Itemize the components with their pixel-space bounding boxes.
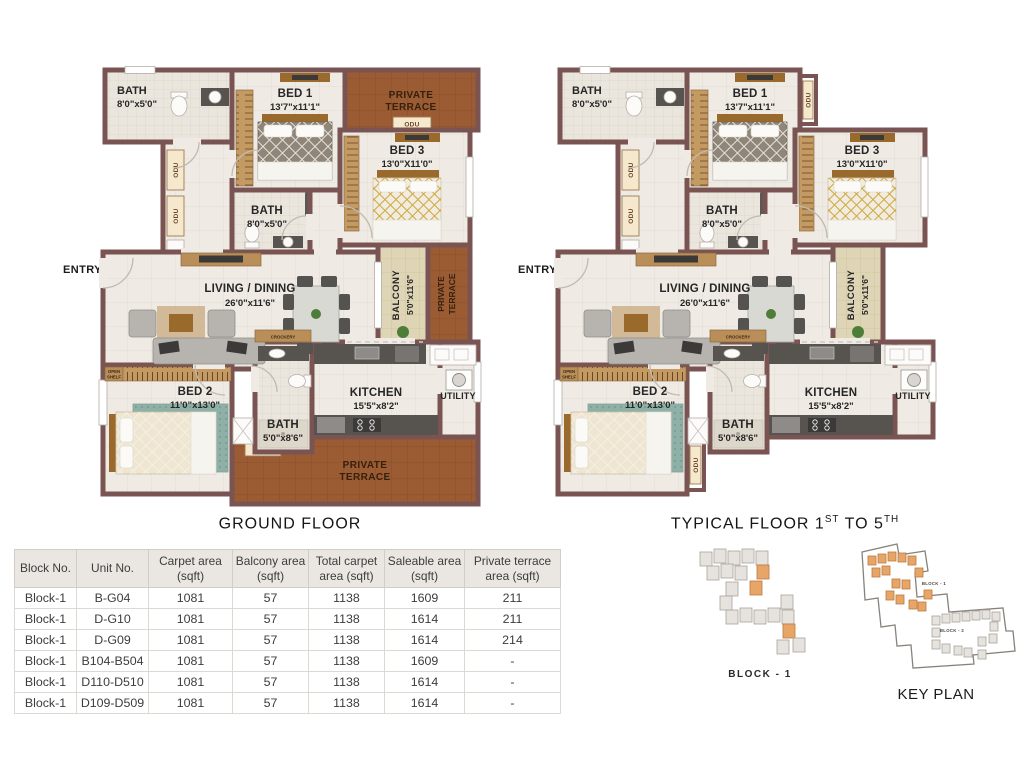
cell-block: Block-1 (15, 630, 77, 651)
cell-total-carpet: 1138 (309, 651, 385, 672)
svg-text:5'0"x11'6": 5'0"x11'6" (860, 275, 870, 315)
bath-bottom-label: BATH (722, 419, 754, 431)
kitchen-label: KITCHEN (350, 387, 403, 399)
bed1-label: BED 1 (278, 88, 313, 100)
svg-text:13'7"x11'1": 13'7"x11'1" (725, 102, 775, 113)
highlighted-unit (750, 581, 762, 595)
cell-carpet: 1081 (149, 651, 233, 672)
cell-block: Block-1 (15, 693, 77, 714)
cell-unit: D110-D510 (77, 672, 149, 693)
block1-units (700, 549, 805, 654)
cell-balcony: 57 (233, 651, 309, 672)
area-table-head: Block No.Unit No.Carpet area (sqft)Balco… (15, 550, 561, 588)
area-table: Block No.Unit No.Carpet area (sqft)Balco… (14, 549, 561, 714)
column-header: Saleable area (sqft) (385, 550, 465, 588)
bath-mid-label: BATH (706, 205, 738, 217)
cell-carpet: 1081 (149, 588, 233, 609)
svg-text:OPEN: OPEN (108, 369, 120, 374)
floor-plan-svg: ENTRY ODU ODU ODU ODU (510, 62, 945, 514)
svg-text:ODU: ODU (628, 208, 635, 223)
corridor-dressing: ODU ODU (163, 142, 232, 255)
bed3-label: BED 3 (390, 145, 425, 157)
svg-text:13'7"x11'1": 13'7"x11'1" (270, 102, 320, 113)
svg-text:TERRACE: TERRACE (447, 273, 457, 314)
svg-text:SHELF: SHELF (107, 375, 121, 380)
svg-text:26'0"x11'6": 26'0"x11'6" (680, 298, 730, 309)
cell-total-carpet: 1138 (309, 609, 385, 630)
svg-text:PRIVATE: PRIVATE (343, 460, 388, 471)
cell-carpet: 1081 (149, 609, 233, 630)
svg-text:5'0"x11'6": 5'0"x11'6" (405, 275, 415, 315)
svg-text:CROCKERY: CROCKERY (726, 335, 751, 340)
cell-unit: B104-B504 (77, 651, 149, 672)
column-header: Carpet area (sqft) (149, 550, 233, 588)
svg-text:ODU: ODU (173, 162, 180, 177)
bath-mid-label: BATH (251, 205, 283, 217)
cell-terrace: 211 (465, 609, 561, 630)
svg-text:CROCKERY: CROCKERY (271, 335, 296, 340)
balcony-label: BALCONY (391, 270, 402, 321)
cell-block: Block-1 (15, 609, 77, 630)
page: ENTRY PRIVATE TERRACE ODU PRIVATE TERRAC… (0, 0, 1024, 768)
cell-terrace: 211 (465, 588, 561, 609)
svg-text:ODU: ODU (806, 92, 813, 107)
svg-text:PRIVATE: PRIVATE (436, 276, 446, 312)
bed1-label: BED 1 (733, 88, 768, 100)
column-header: Private terrace area (sqft) (465, 550, 561, 588)
hallway (310, 190, 340, 252)
block1-inner-label: BLOCK - 1 (922, 581, 946, 586)
svg-text:15'5"x8'2": 15'5"x8'2" (808, 401, 853, 412)
cell-saleable: 1614 (385, 693, 465, 714)
cell-saleable: 1614 (385, 630, 465, 651)
cell-terrace: - (465, 672, 561, 693)
svg-text:26'0"x11'6": 26'0"x11'6" (225, 298, 275, 309)
cell-total-carpet: 1138 (309, 672, 385, 693)
cell-balcony: 57 (233, 693, 309, 714)
table-row: Block-1B104-B50410815711381609- (15, 651, 561, 672)
column-header: Total carpet area (sqft) (309, 550, 385, 588)
svg-text:ODU: ODU (693, 457, 700, 472)
svg-text:TERRACE: TERRACE (339, 472, 390, 483)
cell-saleable: 1609 (385, 651, 465, 672)
svg-text:OPEN: OPEN (563, 369, 575, 374)
typical-floor-caption: TYPICAL FLOOR 1ST TO 5TH (585, 514, 985, 533)
cell-carpet: 1081 (149, 630, 233, 651)
utility-label: UTILITY (440, 391, 475, 401)
room-bed2: OPEN SHELF (99, 365, 232, 494)
typical-floor-plan: ENTRY ODU ODU ODU ODU (510, 62, 945, 544)
cell-saleable: 1614 (385, 672, 465, 693)
svg-text:SHELF: SHELF (562, 375, 576, 380)
cell-block: Block-1 (15, 672, 77, 693)
cell-carpet: 1081 (149, 672, 233, 693)
entry-label: ENTRY (63, 264, 102, 276)
svg-text:8'0"x5'0": 8'0"x5'0" (247, 219, 287, 230)
cell-saleable: 1609 (385, 588, 465, 609)
svg-text:5'0"x8'6": 5'0"x8'6" (263, 433, 303, 444)
cell-carpet: 1081 (149, 693, 233, 714)
block1-mini-plan: BLOCK - 1 (697, 546, 823, 680)
cell-unit: D-G10 (77, 609, 149, 630)
odu-label: ODU (404, 122, 419, 129)
svg-text:15'5"x8'2": 15'5"x8'2" (353, 401, 398, 412)
cell-saleable: 1614 (385, 609, 465, 630)
balcony-label: BALCONY (846, 270, 857, 321)
highlighted-unit (783, 624, 795, 638)
bath-top-label: BATH (572, 85, 602, 97)
key-plan: BLOCK - 1 BLOCK - 2 KEY PLA (852, 538, 1020, 703)
table-row: Block-1D-G1010815711381614211 (15, 609, 561, 630)
corridor-dressing: ODU ODU (618, 142, 687, 255)
bed2-label: BED 2 (178, 386, 213, 398)
cell-balcony: 57 (233, 672, 309, 693)
svg-text:11'0"x13'0": 11'0"x13'0" (625, 400, 675, 411)
private-terrace-top: PRIVATE TERRACE ODU (345, 70, 478, 130)
bath-top-label: BATH (117, 85, 147, 97)
block2-inner-label: BLOCK - 2 (940, 628, 964, 633)
column-header: Balcony area (sqft) (233, 550, 309, 588)
cell-total-carpet: 1138 (309, 693, 385, 714)
svg-text:13'0"X11'0": 13'0"X11'0" (836, 159, 887, 170)
bed3-label: BED 3 (845, 145, 880, 157)
table-row: Block-1D109-D50910815711381614- (15, 693, 561, 714)
living-label: LIVING / DINING (204, 283, 295, 295)
key-plan-svg: BLOCK - 1 BLOCK - 2 (852, 538, 1020, 678)
svg-text:13'0"X11'0": 13'0"X11'0" (381, 159, 432, 170)
svg-text:TERRACE: TERRACE (385, 102, 436, 113)
cell-block: Block-1 (15, 588, 77, 609)
cell-unit: D-G09 (77, 630, 149, 651)
private-terrace-right: PRIVATE TERRACE (428, 242, 470, 347)
ground-floor-plan: ENTRY PRIVATE TERRACE ODU PRIVATE TERRAC… (55, 62, 490, 544)
ground-floor-caption: GROUND FLOOR (90, 514, 490, 533)
cell-terrace: 214 (465, 630, 561, 651)
table-row: Block-1B-G0410815711381609211 (15, 588, 561, 609)
cell-terrace: - (465, 693, 561, 714)
cell-unit: D109-D509 (77, 693, 149, 714)
floor-plan-svg: ENTRY PRIVATE TERRACE ODU PRIVATE TERRAC… (55, 62, 490, 514)
utility-label: UTILITY (895, 391, 930, 401)
svg-text:8'0"x5'0": 8'0"x5'0" (117, 99, 157, 110)
table-row: Block-1D110-D51010815711381614- (15, 672, 561, 693)
entry-label: ENTRY (518, 264, 557, 276)
hallway (765, 190, 795, 252)
svg-text:11'0"x13'0": 11'0"x13'0" (170, 400, 220, 411)
block1-caption: BLOCK - 1 (697, 669, 823, 680)
svg-text:8'0"x5'0": 8'0"x5'0" (702, 219, 742, 230)
table-row: Block-1D-G0910815711381614214 (15, 630, 561, 651)
svg-text:PRIVATE: PRIVATE (389, 90, 434, 101)
cell-total-carpet: 1138 (309, 588, 385, 609)
header-row: Block No.Unit No.Carpet area (sqft)Balco… (15, 550, 561, 588)
kitchen-label: KITCHEN (805, 387, 858, 399)
bed2-label: BED 2 (633, 386, 668, 398)
living-label: LIVING / DINING (659, 283, 750, 295)
svg-text:5'0"x8'6": 5'0"x8'6" (718, 433, 758, 444)
area-table-body: Block-1B-G0410815711381609211Block-1D-G1… (15, 588, 561, 714)
cell-balcony: 57 (233, 630, 309, 651)
cell-block: Block-1 (15, 651, 77, 672)
cell-balcony: 57 (233, 609, 309, 630)
block1-mini-svg (697, 546, 823, 658)
column-header: Block No. (15, 550, 77, 588)
cell-terrace: - (465, 651, 561, 672)
cell-total-carpet: 1138 (309, 630, 385, 651)
svg-text:ODU: ODU (173, 208, 180, 223)
bath-bottom-label: BATH (267, 419, 299, 431)
svg-text:ODU: ODU (628, 162, 635, 177)
highlighted-unit (757, 565, 769, 579)
cell-balcony: 57 (233, 588, 309, 609)
svg-text:8'0"x5'0": 8'0"x5'0" (572, 99, 612, 110)
room-bed2: OPEN SHELF (554, 365, 687, 494)
key-plan-caption: KEY PLAN (852, 686, 1020, 703)
column-header: Unit No. (77, 550, 149, 588)
cell-unit: B-G04 (77, 588, 149, 609)
